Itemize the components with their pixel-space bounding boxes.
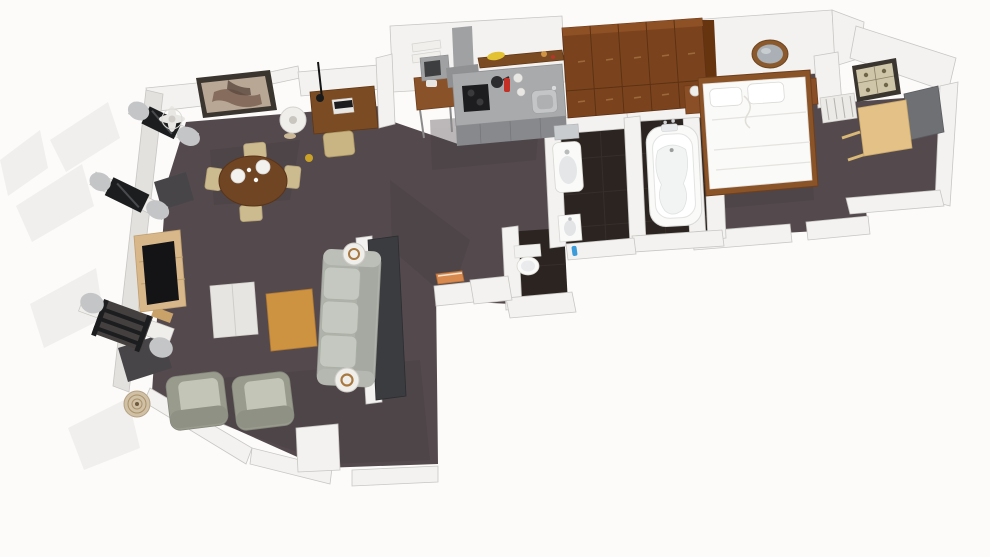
coffee-table[interactable] bbox=[266, 289, 317, 351]
cooktop[interactable] bbox=[462, 84, 490, 112]
round-wall-mirror bbox=[752, 40, 788, 68]
wall-south-b bbox=[352, 466, 438, 486]
pillow bbox=[747, 82, 784, 104]
wall-hall-step-b bbox=[470, 276, 512, 304]
sofa[interactable] bbox=[316, 249, 381, 388]
floor-plan-stage bbox=[0, 0, 990, 557]
sofa-cushion bbox=[319, 335, 357, 369]
wall-art bbox=[852, 58, 901, 102]
bath-faucet bbox=[661, 124, 677, 132]
faucet bbox=[552, 86, 557, 91]
television[interactable] bbox=[142, 241, 179, 305]
dining-table[interactable] bbox=[219, 156, 287, 206]
jar bbox=[517, 88, 525, 96]
wall-inner-step bbox=[296, 424, 340, 472]
floor-object-gold bbox=[305, 154, 313, 162]
washbasin[interactable] bbox=[552, 141, 583, 193]
sofa-cushion bbox=[323, 267, 361, 301]
exterior-shadows bbox=[0, 102, 140, 470]
floor-plan-canvas bbox=[0, 0, 990, 557]
dinner-plate bbox=[231, 169, 245, 183]
toilet-tank bbox=[514, 244, 541, 258]
cooking-pot[interactable] bbox=[491, 76, 503, 88]
sofa-cushion bbox=[321, 301, 359, 335]
toaster bbox=[426, 80, 437, 87]
ottoman[interactable] bbox=[210, 282, 258, 338]
radiator bbox=[820, 93, 857, 123]
armchair-1[interactable] bbox=[165, 371, 229, 432]
fire-extinguisher[interactable] bbox=[504, 78, 510, 92]
desk-chair[interactable] bbox=[323, 130, 355, 157]
microwave-door bbox=[424, 60, 441, 77]
basin-faucet bbox=[565, 150, 570, 155]
armchair-2[interactable] bbox=[231, 371, 295, 432]
jar bbox=[514, 74, 523, 83]
wall-office-column bbox=[376, 54, 395, 128]
wall-painting[interactable] bbox=[196, 70, 277, 118]
wall-mirror-small bbox=[554, 124, 579, 140]
wicker-basket[interactable] bbox=[124, 391, 150, 417]
floor-lamp-south[interactable] bbox=[335, 368, 359, 392]
wall-hall-step-a bbox=[434, 282, 474, 306]
pillow bbox=[709, 87, 742, 107]
double-bed[interactable] bbox=[698, 70, 818, 196]
floor-lamp-north[interactable] bbox=[343, 243, 365, 265]
dinner-plate bbox=[256, 160, 270, 174]
hand-sink[interactable] bbox=[558, 214, 582, 242]
kitchen-counter[interactable] bbox=[452, 64, 567, 146]
wall-door-return bbox=[270, 66, 300, 84]
tv-stand[interactable] bbox=[134, 230, 186, 312]
bathtub[interactable] bbox=[645, 118, 703, 227]
desk-lamp[interactable] bbox=[316, 94, 324, 102]
